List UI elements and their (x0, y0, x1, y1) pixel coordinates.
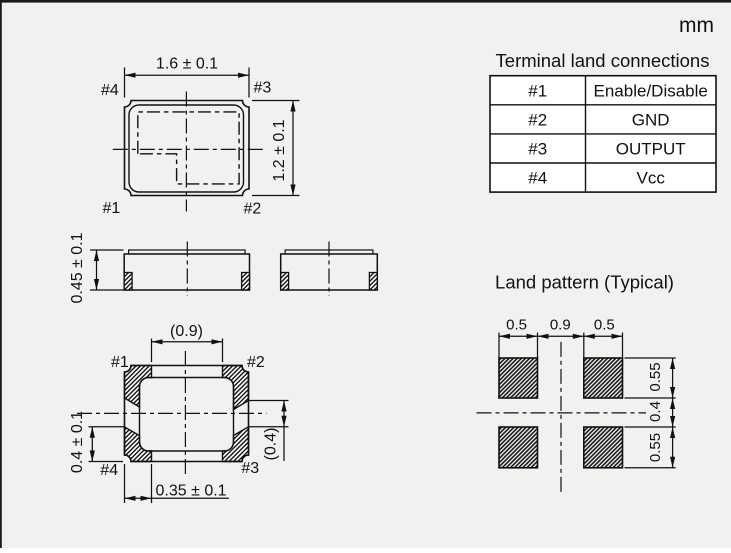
svg-text:#4: #4 (100, 462, 118, 479)
svg-text:(0.9): (0.9) (170, 323, 203, 340)
svg-text:0.4 ± 0.1: 0.4 ± 0.1 (69, 411, 86, 473)
svg-text:#1: #1 (111, 354, 129, 371)
svg-text:0.5: 0.5 (506, 317, 527, 334)
svg-text:Vcc: Vcc (637, 169, 666, 188)
svg-text:Enable/Disable: Enable/Disable (594, 81, 708, 100)
svg-text:#3: #3 (254, 80, 272, 97)
svg-text:0.9: 0.9 (550, 317, 571, 334)
svg-text:0.45 ± 0.1: 0.45 ± 0.1 (69, 232, 86, 303)
svg-text:#3: #3 (528, 140, 547, 159)
svg-text:Land pattern (Typical): Land pattern (Typical) (495, 272, 674, 293)
svg-text:0.4: 0.4 (647, 401, 664, 422)
svg-text:#1: #1 (528, 81, 547, 100)
svg-text:mm: mm (679, 14, 714, 37)
svg-text:0.35 ± 0.1: 0.35 ± 0.1 (156, 483, 227, 500)
svg-text:#2: #2 (247, 354, 265, 371)
svg-text:#1: #1 (103, 200, 121, 217)
svg-text:OUTPUT: OUTPUT (616, 140, 686, 159)
svg-text:0.5: 0.5 (594, 317, 615, 334)
svg-text:#2: #2 (528, 110, 547, 129)
svg-text:1.2 ± 0.1: 1.2 ± 0.1 (271, 119, 288, 181)
svg-text:#3: #3 (241, 460, 259, 477)
svg-text:0.55: 0.55 (647, 362, 664, 391)
svg-text:(0.4): (0.4) (263, 428, 280, 461)
svg-text:#4: #4 (101, 82, 119, 99)
svg-text:GND: GND (632, 110, 670, 129)
svg-text:#2: #2 (244, 201, 262, 218)
svg-text:#4: #4 (528, 169, 547, 188)
svg-text:0.55: 0.55 (647, 433, 664, 462)
svg-text:1.6 ± 0.1: 1.6 ± 0.1 (156, 56, 218, 73)
svg-text:Terminal land connections: Terminal land connections (496, 50, 710, 71)
